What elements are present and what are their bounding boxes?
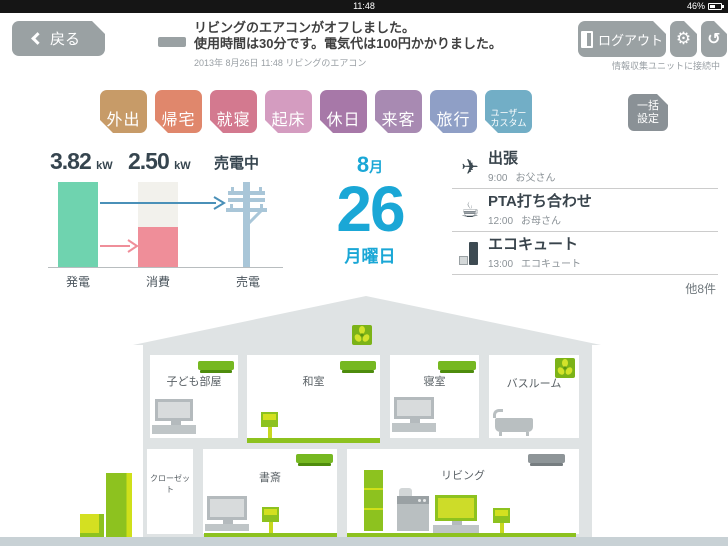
floor-heating-strip (247, 438, 380, 443)
connection-status: 情報収集ユニットに接続中 (612, 59, 720, 72)
refresh-button[interactable]: ↺ (701, 21, 727, 57)
cup-icon: ☕ (452, 198, 488, 223)
mode-button-return-home[interactable]: 帰宅 (155, 90, 202, 133)
batch-settings-button[interactable]: 一括設定 (628, 94, 668, 131)
ev-charger-icon[interactable] (80, 514, 104, 537)
notification[interactable]: リビングのエアコンがオフしました。 使用時間は30分です。電気代は100円かかり… (158, 20, 502, 69)
room-bedroom[interactable]: 寝室 (390, 355, 479, 438)
room-closet[interactable]: クローゼット (147, 449, 193, 534)
lamp-icon[interactable] (261, 412, 278, 438)
consumption-value: 2.50 kW (128, 148, 191, 175)
logout-button[interactable]: ログアウト (578, 21, 666, 57)
room-kids[interactable]: 子ども部屋 (150, 355, 238, 438)
aircon-icon[interactable] (296, 454, 333, 463)
room-washitsu[interactable]: 和室 (247, 355, 380, 438)
settings-button[interactable]: ⚙ (670, 21, 697, 57)
room-study[interactable]: 書斎 (203, 449, 337, 534)
aircon-icon[interactable] (340, 361, 376, 370)
energy-axis (48, 267, 283, 268)
bathtub-icon[interactable] (495, 418, 533, 432)
mode-button-bedtime[interactable]: 就寝 (210, 90, 257, 133)
date-panel[interactable]: 8月 26 月曜日 (296, 152, 444, 267)
consumption-fill (138, 227, 178, 267)
water-heater-icon (452, 242, 488, 265)
aircon-icon[interactable] (438, 361, 476, 370)
sell-label: 売電 (228, 273, 268, 290)
tv-icon[interactable] (207, 496, 249, 531)
room-label: 書斎 (203, 469, 337, 485)
gear-icon: ⚙ (676, 29, 691, 49)
status-bar: 11:48 46% (0, 0, 728, 13)
bath-fan-icon[interactable] (555, 358, 575, 378)
room-label: 和室 (247, 373, 380, 389)
room-label: 子ども部屋 (150, 373, 238, 389)
notification-line2: 使用時間は30分です。電気代は100円かかりました。 (194, 36, 502, 52)
mode-button-guest[interactable]: 来客 (375, 90, 422, 133)
generation-value: 3.82 kW (50, 148, 113, 175)
fridge-icon[interactable] (364, 470, 383, 531)
attic-fan-icon[interactable] (352, 325, 372, 345)
airplane-icon: ✈ (452, 155, 488, 180)
lamp-icon[interactable] (493, 508, 510, 534)
mode-button-travel[interactable]: 旅行 (430, 90, 477, 133)
door-icon (581, 31, 593, 48)
hems-dashboard: 11:48 46% 戻る リビングのエアコンがオフしました。 使用時間は30分で… (0, 0, 728, 546)
room-bathroom[interactable]: バスルーム (489, 355, 579, 438)
room-living[interactable]: リビング (347, 449, 579, 534)
aircon-icon[interactable] (198, 361, 234, 370)
notification-timestamp: 2013年 8月26日 11:48 リビングのエアコン (194, 56, 502, 69)
sell-status: 売電中 (214, 152, 259, 173)
logout-label: ログアウト (598, 30, 663, 49)
power-conditioner-icon[interactable] (106, 473, 132, 537)
date-weekday: 月曜日 (296, 242, 444, 267)
mode-button-row: 外出 帰宅 就寝 起床 休日 来客 旅行 ユーザーカスタム 一括設定 (100, 90, 670, 133)
date-day: 26 (296, 178, 444, 240)
tv-icon[interactable] (394, 397, 436, 432)
consumption-bar (138, 182, 178, 267)
consumption-label: 消費 (138, 273, 178, 290)
mode-button-user-custom[interactable]: ユーザーカスタム (485, 90, 532, 133)
lamp-icon[interactable] (262, 507, 279, 533)
mode-button-holiday[interactable]: 休日 (320, 90, 367, 133)
aircon-icon (158, 37, 186, 47)
sell-arrow (100, 196, 226, 210)
back-button[interactable]: 戻る (12, 21, 105, 56)
schedule-item[interactable]: ✈ 出張 9:00お父さん (452, 146, 718, 189)
generation-label: 発電 (58, 273, 98, 290)
tv-icon[interactable] (435, 495, 479, 533)
room-label: 寝室 (390, 373, 479, 389)
aircon-off-icon[interactable] (528, 454, 565, 463)
back-label: 戻る (50, 28, 80, 49)
ground (0, 537, 728, 546)
mode-button-wake-up[interactable]: 起床 (265, 90, 312, 133)
clock: 11:48 (0, 1, 728, 11)
room-label: クローゼット (147, 473, 193, 495)
schedule-panel: ✈ 出張 9:00お父さん ☕ PTA打ち合わせ 12:00お母さん エコキュー… (452, 146, 718, 297)
generation-bar (58, 182, 98, 267)
battery-icon (708, 3, 722, 10)
energy-panel: 3.82 kW 2.50 kW 売電中 発電 消費 (40, 148, 290, 296)
schedule-item[interactable]: ☕ PTA打ち合わせ 12:00お母さん (452, 189, 718, 232)
schedule-more-count[interactable]: 他8件 (452, 275, 718, 297)
washer-icon[interactable] (397, 496, 429, 531)
consume-arrow (100, 239, 140, 253)
chevron-left-icon (31, 32, 44, 45)
utility-pole-icon (226, 182, 266, 267)
battery-percent: 46% (687, 1, 705, 11)
notification-line1: リビングのエアコンがオフしました。 (194, 20, 502, 36)
mode-button-going-out[interactable]: 外出 (100, 90, 147, 133)
schedule-item[interactable]: エコキュート 13:00エコキュート (452, 232, 718, 275)
tv-icon[interactable] (155, 399, 196, 434)
refresh-icon: ↺ (707, 29, 720, 49)
